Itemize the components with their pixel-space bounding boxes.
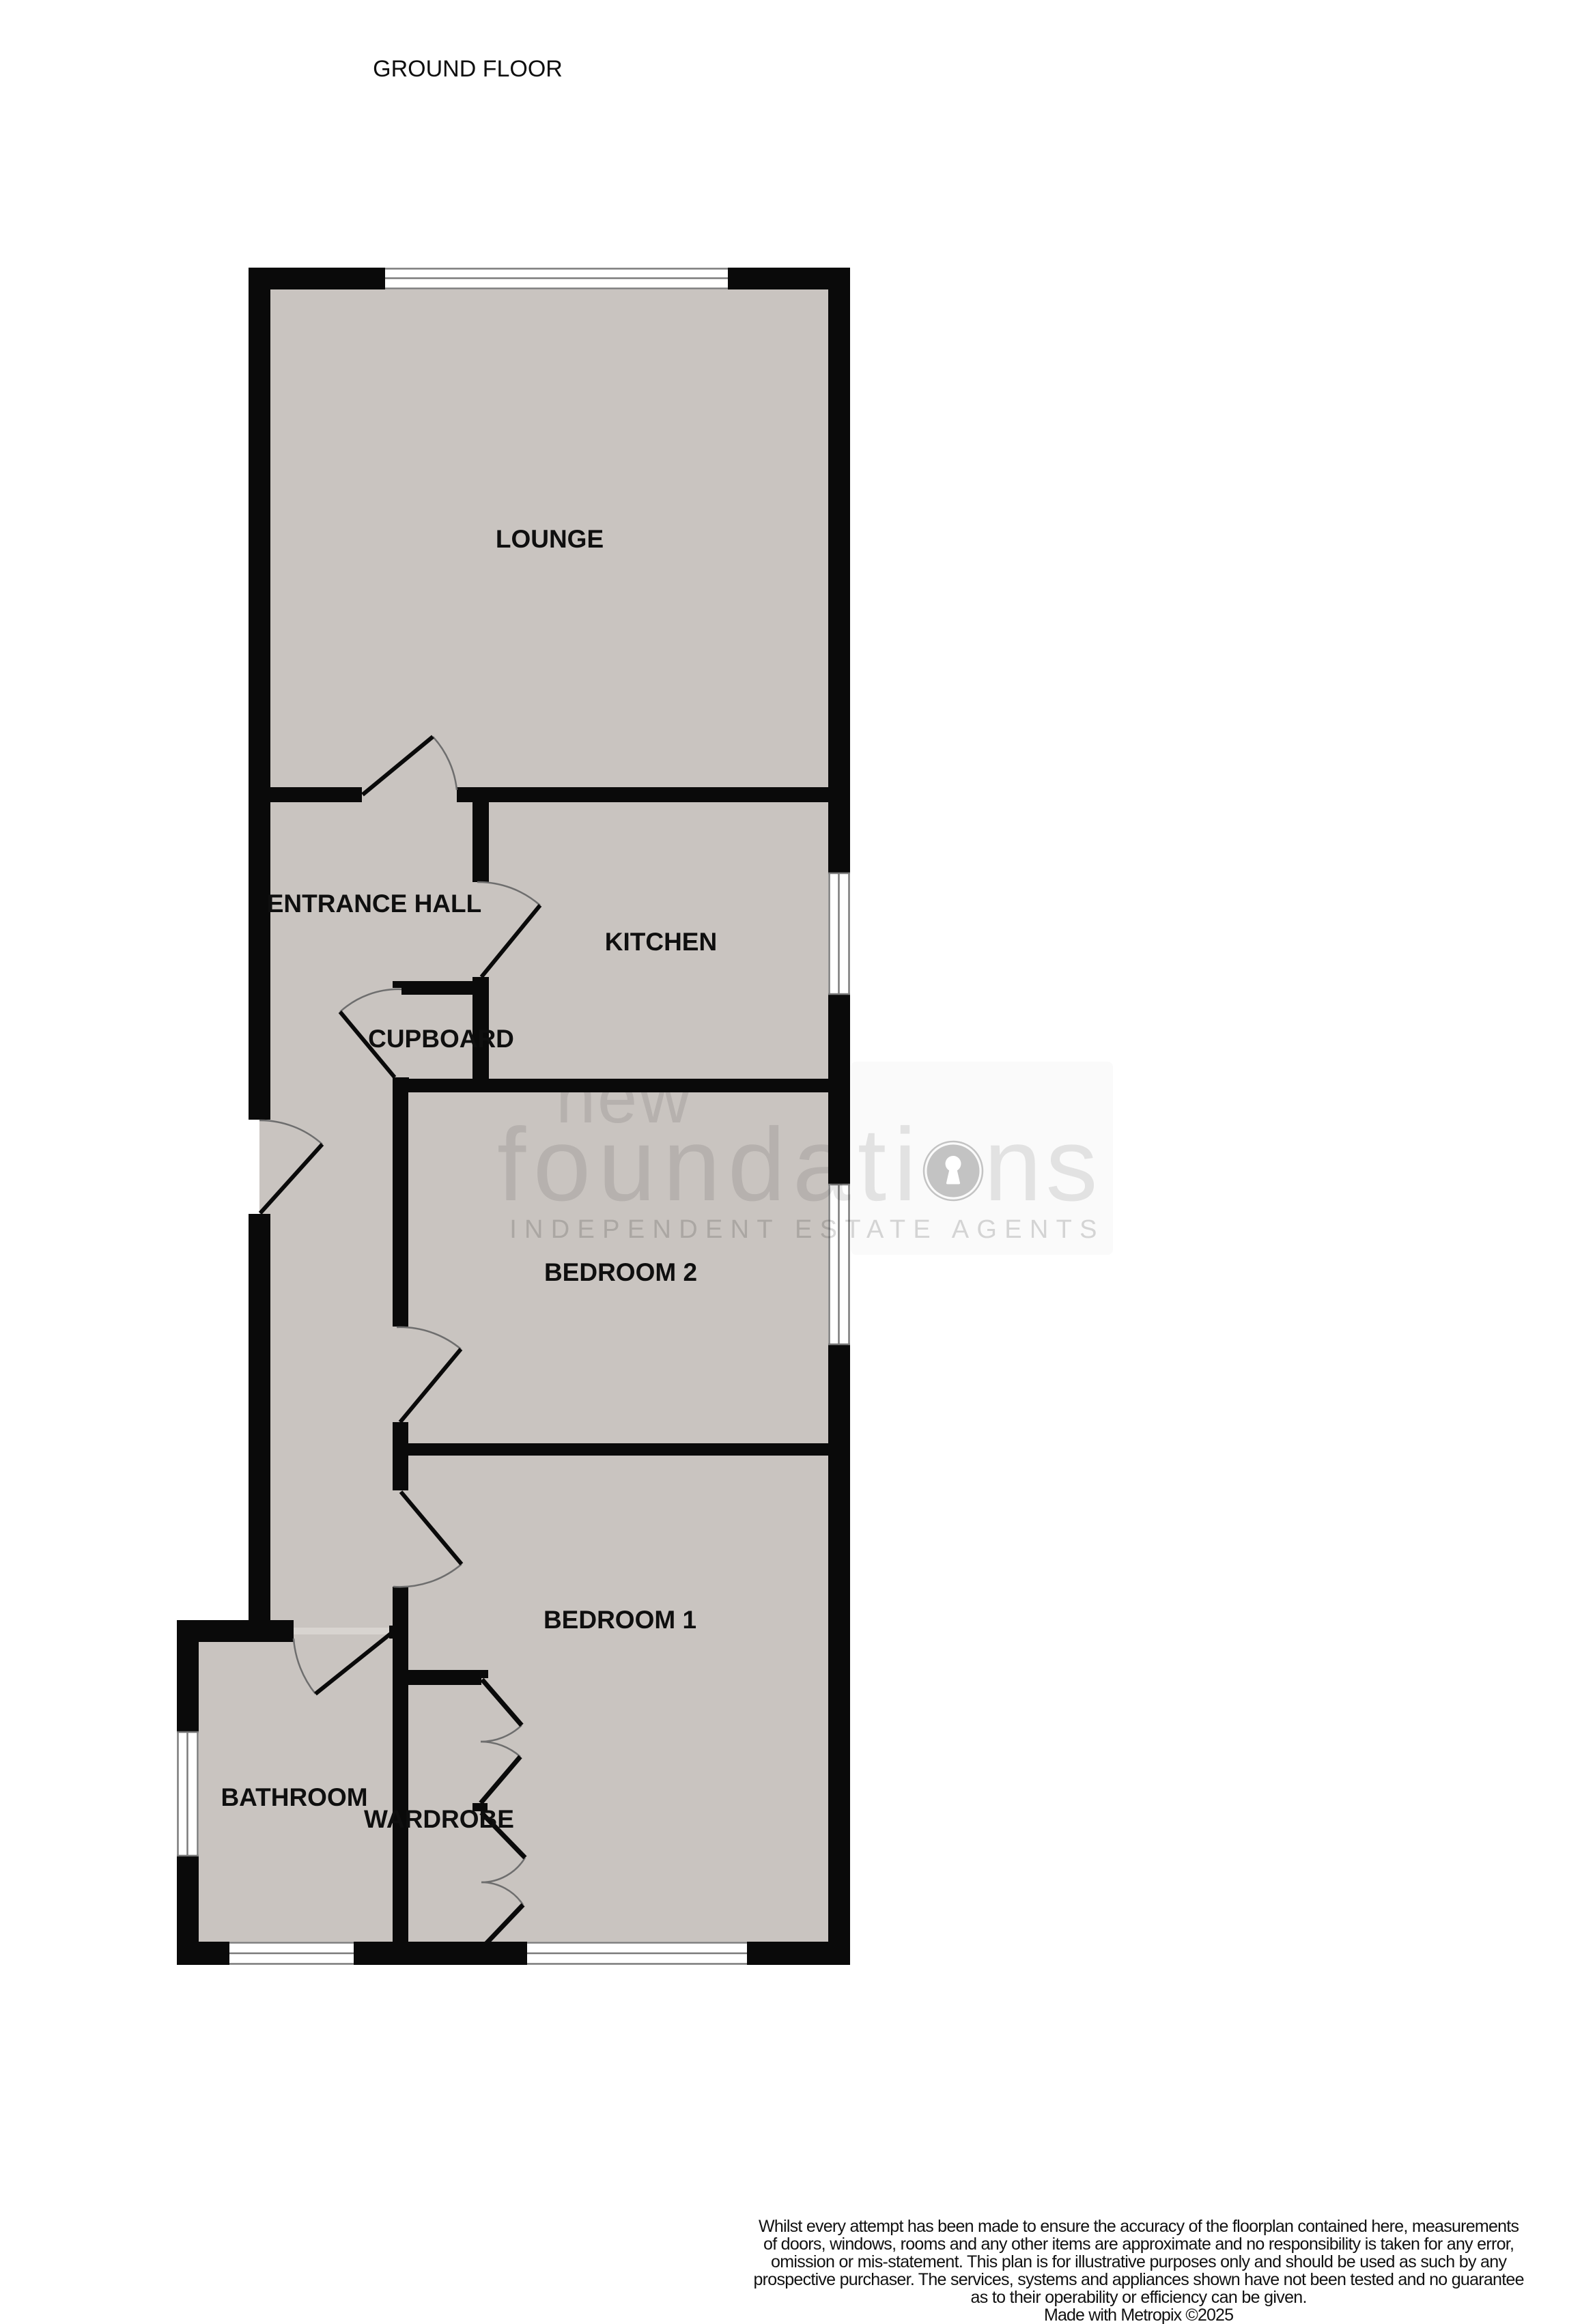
svg-text:KITCHEN: KITCHEN [605, 928, 717, 956]
svg-text:CUPBOARD: CUPBOARD [368, 1025, 514, 1053]
svg-text:INDEPENDENT ESTATE AGENTS: INDEPENDENT ESTATE AGENTS [509, 1215, 1105, 1244]
svg-text:omission or mis-statement. Thi: omission or mis-statement. This plan is … [771, 2252, 1508, 2271]
svg-text:WARDROBE: WARDROBE [364, 1805, 514, 1833]
svg-text:Made with Metropix ©2025: Made with Metropix ©2025 [1044, 2306, 1234, 2324]
svg-text:BEDROOM 2: BEDROOM 2 [544, 1258, 697, 1286]
svg-text:of doors, windows, rooms and a: of doors, windows, rooms and any other i… [763, 2235, 1514, 2254]
svg-text:BATHROOM: BATHROOM [221, 1783, 367, 1811]
svg-text:ns: ns [984, 1107, 1102, 1223]
svg-text:Whilst every attempt has been: Whilst every attempt has been made to en… [759, 2217, 1519, 2236]
svg-text:foundati: foundati [497, 1107, 924, 1223]
svg-text:prospective purchaser. The ser: prospective purchaser. The services, sys… [754, 2270, 1525, 2289]
svg-text:ENTRANCE HALL: ENTRANCE HALL [267, 890, 481, 918]
svg-text:as to their operability or eff: as to their operability or efficiency ca… [971, 2288, 1308, 2307]
svg-text:BEDROOM 1: BEDROOM 1 [544, 1606, 696, 1634]
svg-text:GROUND FLOOR: GROUND FLOOR [373, 56, 563, 82]
svg-text:LOUNGE: LOUNGE [496, 525, 604, 553]
